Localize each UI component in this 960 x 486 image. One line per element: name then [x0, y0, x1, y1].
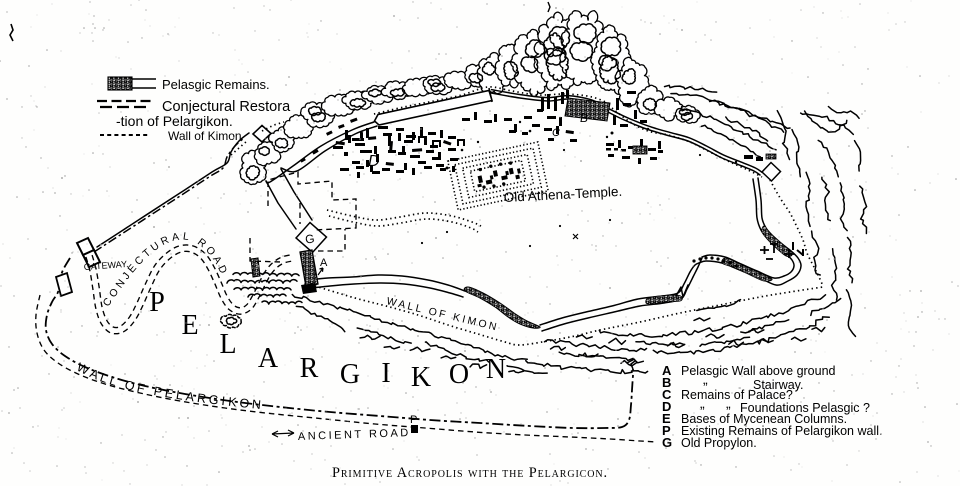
svg-text:G: G — [662, 435, 672, 450]
svg-text:G: G — [304, 231, 315, 246]
svg-text:R: R — [300, 353, 319, 384]
svg-text:„: „ — [726, 395, 731, 411]
svg-text:A: A — [258, 343, 279, 374]
svg-text:„: „ — [703, 371, 708, 387]
svg-text:A: A — [320, 257, 328, 269]
svg-text:„: „ — [700, 395, 705, 411]
svg-text:C: C — [552, 127, 560, 139]
svg-text:P: P — [410, 414, 417, 426]
svg-text:-tion of Pelargikon.: -tion of Pelargikon. — [116, 113, 233, 129]
svg-text:I: I — [381, 358, 390, 389]
svg-text:Stairway.: Stairway. — [753, 378, 803, 392]
svg-text:N: N — [486, 354, 506, 385]
svg-text:Foundations Pelasgic ?: Foundations Pelasgic ? — [740, 401, 870, 415]
svg-text:Wall of Kimon: Wall of Kimon — [168, 129, 242, 143]
svg-text:Old Propylon.: Old Propylon. — [681, 436, 757, 450]
svg-text:B: B — [580, 111, 588, 125]
svg-text:O: O — [449, 359, 469, 390]
svg-text:L: L — [219, 329, 236, 360]
svg-text:K: K — [411, 362, 431, 393]
svg-text:D: D — [368, 153, 380, 170]
svg-text:G: G — [340, 359, 360, 390]
svg-text:P: P — [149, 287, 165, 318]
svg-text:E: E — [181, 310, 198, 341]
svg-text:Pelasgic Remains.: Pelasgic Remains. — [162, 77, 270, 92]
svg-text:Primitive Acropolis with the P: Primitive Acropolis with the Pelargicon. — [332, 465, 608, 481]
